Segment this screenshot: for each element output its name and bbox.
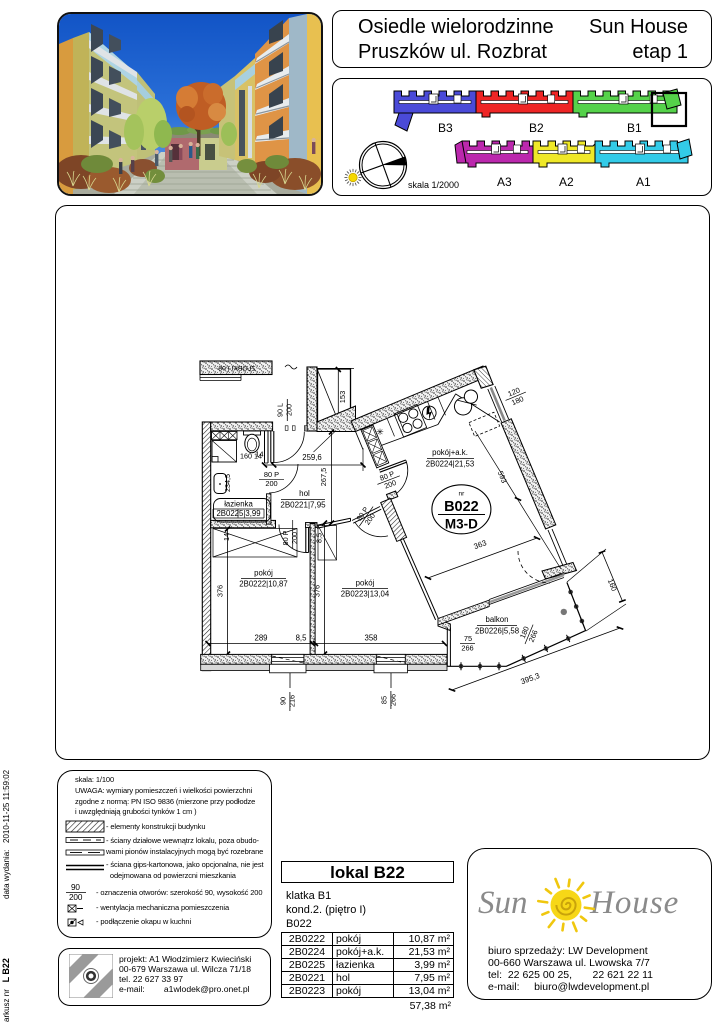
- svg-text:2B0223|13,04: 2B0223|13,04: [341, 590, 390, 599]
- svg-text:A1: A1: [636, 175, 651, 189]
- svg-text:14: 14: [256, 450, 264, 459]
- svg-text:2B0224|21,53: 2B0224|21,53: [426, 460, 474, 469]
- svg-text:House: House: [589, 885, 679, 921]
- svg-text:216: 216: [288, 695, 297, 707]
- svg-text:80 P: 80 P: [264, 470, 279, 479]
- svg-text:200: 200: [265, 479, 277, 488]
- svg-text:łazienka: łazienka: [224, 500, 253, 509]
- svg-text:2B0222|10,87: 2B0222|10,87: [239, 580, 287, 589]
- svg-text:363: 363: [472, 538, 487, 551]
- svg-text:200: 200: [290, 532, 299, 544]
- svg-text:2B0225|3,99: 2B0225|3,99: [216, 509, 260, 518]
- svg-text:8,5: 8,5: [296, 634, 308, 643]
- svg-text:hol: hol: [299, 489, 310, 498]
- svg-text:75: 75: [464, 634, 472, 643]
- svg-text:A3: A3: [497, 175, 512, 189]
- svg-text:289: 289: [254, 634, 267, 643]
- svg-text:2B0221|7,95: 2B0221|7,95: [280, 501, 326, 510]
- svg-text:B022: B022: [444, 499, 479, 515]
- svg-text:pokój+a.k.: pokój+a.k.: [432, 448, 468, 457]
- svg-text:nr: nr: [459, 491, 466, 498]
- svg-text:266: 266: [389, 694, 398, 706]
- svg-text:M3-D: M3-D: [445, 517, 478, 532]
- svg-text:2B0226|5,58: 2B0226|5,58: [475, 627, 519, 636]
- svg-text:200: 200: [69, 893, 83, 902]
- svg-text:B2: B2: [529, 121, 544, 135]
- svg-text:90: 90: [279, 697, 288, 705]
- svg-text:ŻŁOBKI | 08: ŻŁOBKI | 08: [218, 364, 255, 373]
- svg-text:266: 266: [461, 644, 473, 653]
- svg-text:8,5: 8,5: [315, 533, 324, 543]
- svg-text:85: 85: [380, 696, 389, 704]
- svg-text:Sun: Sun: [478, 885, 528, 921]
- svg-text:pokój: pokój: [254, 569, 273, 578]
- svg-text:376: 376: [216, 585, 225, 597]
- svg-text:balkon: balkon: [486, 615, 509, 624]
- svg-text:153: 153: [338, 391, 347, 404]
- svg-text:B1: B1: [627, 121, 642, 135]
- svg-text:234,5: 234,5: [223, 474, 232, 492]
- svg-text:259,6: 259,6: [302, 453, 322, 462]
- svg-text:200: 200: [285, 404, 294, 416]
- svg-text:A2: A2: [559, 175, 574, 189]
- svg-text:160: 160: [606, 578, 619, 593]
- svg-text:skala 1/2000: skala 1/2000: [408, 180, 459, 190]
- svg-text:14: 14: [222, 533, 231, 541]
- svg-text:B3: B3: [438, 121, 453, 135]
- svg-text:267,5: 267,5: [319, 468, 328, 487]
- svg-text:pokój: pokój: [356, 579, 375, 588]
- svg-text:376: 376: [313, 585, 322, 597]
- svg-text:395,3: 395,3: [519, 671, 540, 686]
- svg-text:90 L: 90 L: [276, 403, 285, 417]
- svg-text:90: 90: [71, 883, 80, 892]
- svg-text:358: 358: [364, 634, 377, 643]
